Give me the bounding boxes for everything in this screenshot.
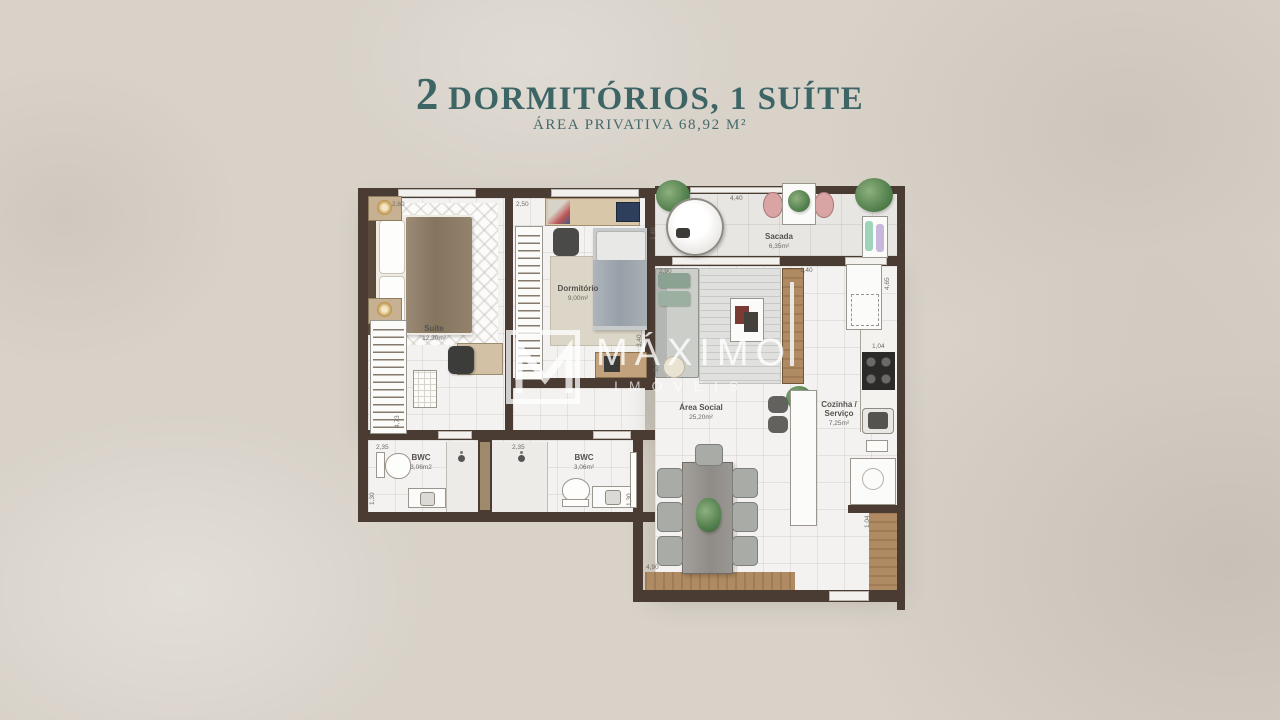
bwc1-toilet-tank [376, 452, 385, 478]
dim-living-width: 2,90 [659, 268, 672, 275]
dim-suite-width: 2,60 [392, 201, 405, 208]
suite-wardrobe [370, 320, 407, 434]
bwc2-shower [492, 442, 548, 512]
dim-deck-width: 1,04 [864, 515, 871, 528]
dorm-laptop [616, 202, 640, 222]
sofa-pillow-1 [658, 273, 690, 288]
wall-bottom-bathrooms [358, 512, 655, 522]
suite-lamp-2 [377, 302, 392, 317]
dining-chair-r1 [732, 468, 758, 498]
wall-kitchen-bottom [848, 505, 897, 513]
sofa-pillow-2 [658, 291, 690, 306]
watermark-brand-sub: IMÓVEIS [614, 378, 749, 394]
balcony-chair-right [814, 192, 834, 218]
dining-chair-l1 [657, 468, 683, 498]
dim-suite-height: 4,73 [394, 415, 401, 428]
bwc2-shower-head [518, 455, 525, 462]
bwc2-sink [605, 490, 621, 505]
dim-hall-width: 1,40 [800, 267, 813, 274]
lounge-chair-cushion [676, 228, 690, 238]
balcony-plant-right [855, 178, 893, 212]
page-subtitle: ÁREA PRIVATIVA 68,92 M² [0, 117, 1280, 134]
bwc2-toilet-tank [562, 499, 589, 507]
deck-strip-right [869, 512, 897, 590]
room-label-cozinha: Cozinha / Serviço 7,25m² [809, 400, 869, 428]
deck-strip-bottom [645, 572, 795, 590]
balcony-chair-left [763, 192, 783, 218]
watermark-brand: MÁXIMO [596, 332, 792, 375]
dorm-desk-papers [548, 200, 570, 224]
stove [862, 352, 895, 390]
bwc1-shower [446, 442, 478, 512]
suite-desk-chair [448, 346, 474, 374]
title-text: DORMITÓRIOS, 1 SUÍTE [438, 81, 864, 117]
washer-drum [862, 468, 884, 490]
dim-bwc2-width: 2,35 [512, 444, 525, 451]
dim-sacada-width: 4,40 [730, 195, 743, 202]
dorm-chair [553, 228, 579, 256]
suite-bench [413, 370, 437, 408]
dim-sacada-depth: 1,40 [650, 227, 657, 240]
dim-counter-width: 1,04 [872, 343, 885, 350]
door-bwc2 [593, 431, 631, 439]
room-label-sacada: Sacada6,35m² [744, 232, 814, 251]
kitchen-appliance [866, 440, 888, 452]
shaft [478, 440, 492, 512]
wall-left [358, 188, 368, 522]
logo-m-glyph [511, 335, 575, 399]
page-background: 2 DORMITÓRIOS, 1 SUÍTE ÁREA PRIVATIVA 68… [0, 0, 1280, 720]
dining-chair-top [695, 444, 723, 466]
dorm-pillows [596, 231, 646, 261]
sliding-door-balcony [672, 257, 780, 265]
balcony-table-plant [788, 190, 810, 212]
window-dormitorio [551, 189, 639, 197]
wall-right [897, 188, 905, 610]
bwc1-shower-head [458, 455, 465, 462]
page-title: 2 DORMITÓRIOS, 1 SUÍTE [0, 68, 1280, 120]
dim-dorm-width: 2,50 [516, 201, 529, 208]
balcony-lounge-chair [666, 198, 724, 256]
suite-lamp-1 [377, 200, 392, 215]
sink-basin [868, 412, 888, 429]
dim-bwc2-depth: 1,30 [626, 493, 633, 506]
fridge-door-swing [851, 294, 879, 326]
dim-kitchen-height: 4,65 [884, 277, 891, 290]
watermark-logo-icon [506, 330, 580, 404]
room-label-bwc1: BWC3,06m2 [396, 453, 446, 472]
dining-chair-r3 [732, 536, 758, 566]
decor-surfboard-lavender [876, 224, 884, 252]
room-label-suite: Suíte12,30m² [404, 324, 464, 343]
watermark: MÁXIMO IMÓVEIS [506, 328, 786, 422]
dining-centerpiece-plant [696, 498, 721, 532]
dining-chair-l2 [657, 502, 683, 532]
dim-bwc1-depth: 1,30 [369, 492, 376, 505]
bwc1-sink [420, 492, 435, 506]
door-deck [829, 591, 869, 601]
dim-dining-width: 4,90 [646, 564, 659, 571]
dining-chair-r2 [732, 502, 758, 532]
dim-bwc1-width: 2,35 [376, 444, 389, 451]
window-suite [398, 189, 476, 197]
room-label-bwc2: BWC3,06m² [559, 453, 609, 472]
decor-surfboard-mint [865, 221, 873, 251]
dining-chair-l3 [657, 536, 683, 566]
door-bwc1 [438, 431, 472, 439]
room-label-dormitorio: Dormitório9,00m² [543, 284, 613, 303]
suite-pillow-1 [379, 220, 405, 274]
title-number: 2 [416, 69, 439, 119]
suite-duvet [406, 217, 472, 333]
